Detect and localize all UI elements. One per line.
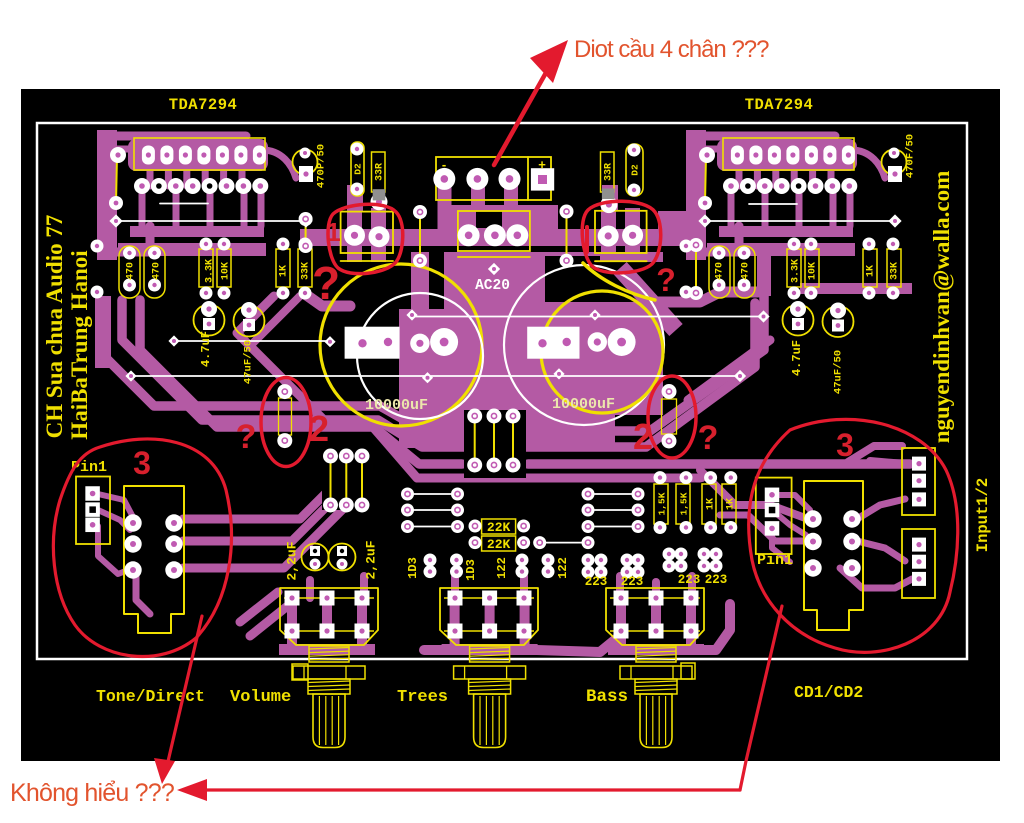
svg-text:1K: 1K [279, 265, 290, 277]
svg-text:D2: D2 [352, 163, 363, 175]
svg-text:3.3K: 3.3K [791, 259, 802, 283]
svg-text:4.7uF: 4.7uF [790, 340, 804, 376]
svg-text:22K: 22K [487, 520, 511, 535]
svg-text:10K: 10K [808, 262, 819, 280]
svg-text:CD1/CD2: CD1/CD2 [794, 683, 863, 702]
svg-text:nguyendinhvan@walla.com: nguyendinhvan@walla.com [929, 171, 955, 444]
svg-text:470: 470 [152, 262, 163, 280]
svg-text:223: 223 [585, 575, 608, 589]
svg-text:Bass: Bass [586, 687, 628, 707]
svg-text:1: 1 [326, 217, 340, 247]
svg-text:2: 2 [309, 408, 329, 449]
svg-text:1,5K: 1,5K [678, 492, 689, 515]
svg-text:?: ? [236, 418, 257, 456]
svg-text:Input1/2: Input1/2 [974, 478, 992, 552]
svg-text:CH Sua chua Audio 77: CH Sua chua Audio 77 [42, 215, 67, 439]
svg-text:TDA7294: TDA7294 [169, 96, 238, 114]
svg-text:10K: 10K [221, 262, 232, 280]
svg-text:33R: 33R [375, 163, 386, 181]
svg-text:1,5K: 1,5K [656, 492, 667, 515]
svg-text:1D3: 1D3 [406, 557, 420, 579]
svg-text:1K: 1K [706, 498, 717, 510]
svg-text:Volume: Volume [230, 688, 291, 707]
svg-text:10000uF: 10000uF [552, 396, 615, 413]
svg-text:D2: D2 [629, 164, 640, 176]
svg-text:33K: 33K [301, 262, 312, 280]
svg-text:33R: 33R [604, 163, 615, 181]
svg-text:223: 223 [678, 573, 701, 587]
svg-text:Pin1: Pin1 [71, 459, 107, 476]
svg-text:Diot cầu 4 chân ???: Diot cầu 4 chân ??? [574, 36, 769, 63]
svg-text:470F/50: 470F/50 [905, 134, 917, 178]
svg-text:33K: 33K [890, 262, 901, 280]
svg-text:Trees: Trees [397, 688, 448, 707]
svg-text:223: 223 [621, 575, 644, 589]
svg-text:2,2uF: 2,2uF [285, 541, 300, 580]
svg-text:470: 470 [741, 262, 752, 280]
svg-text:TDA7294: TDA7294 [745, 96, 814, 114]
svg-text:2,2uF: 2,2uF [364, 540, 379, 579]
svg-text:47uF/50: 47uF/50 [833, 350, 845, 394]
svg-text:?: ? [656, 262, 676, 298]
svg-text:Không hiểu ???: Không hiểu ??? [10, 779, 174, 807]
svg-text:1K: 1K [866, 265, 877, 277]
svg-text:1D3: 1D3 [464, 559, 478, 581]
svg-text:?: ? [698, 419, 719, 457]
svg-text:47uF/50: 47uF/50 [243, 340, 255, 384]
svg-text:2: 2 [633, 416, 653, 457]
svg-text:1K: 1K [726, 498, 737, 510]
svg-text:470P/50: 470P/50 [316, 144, 328, 188]
svg-text:470: 470 [126, 262, 137, 280]
svg-text:122: 122 [495, 557, 509, 579]
svg-text:4.7uF: 4.7uF [199, 331, 213, 367]
svg-text:223: 223 [705, 573, 728, 587]
svg-text:22K: 22K [487, 537, 511, 552]
svg-text:122: 122 [556, 557, 570, 579]
svg-text:10000uF: 10000uF [365, 397, 428, 414]
svg-text:?: ? [312, 257, 340, 309]
svg-text:AC20: AC20 [475, 278, 510, 294]
svg-text:470: 470 [715, 262, 726, 280]
svg-text:3.3K: 3.3K [205, 259, 216, 283]
svg-text:3: 3 [133, 445, 151, 481]
svg-text:3: 3 [836, 427, 854, 463]
svg-text:Pin1: Pin1 [757, 552, 793, 569]
svg-text:Tone/Direct: Tone/Direct [96, 687, 205, 706]
svg-text:HaiBaTrung Hanoi: HaiBaTrung Hanoi [67, 250, 92, 440]
